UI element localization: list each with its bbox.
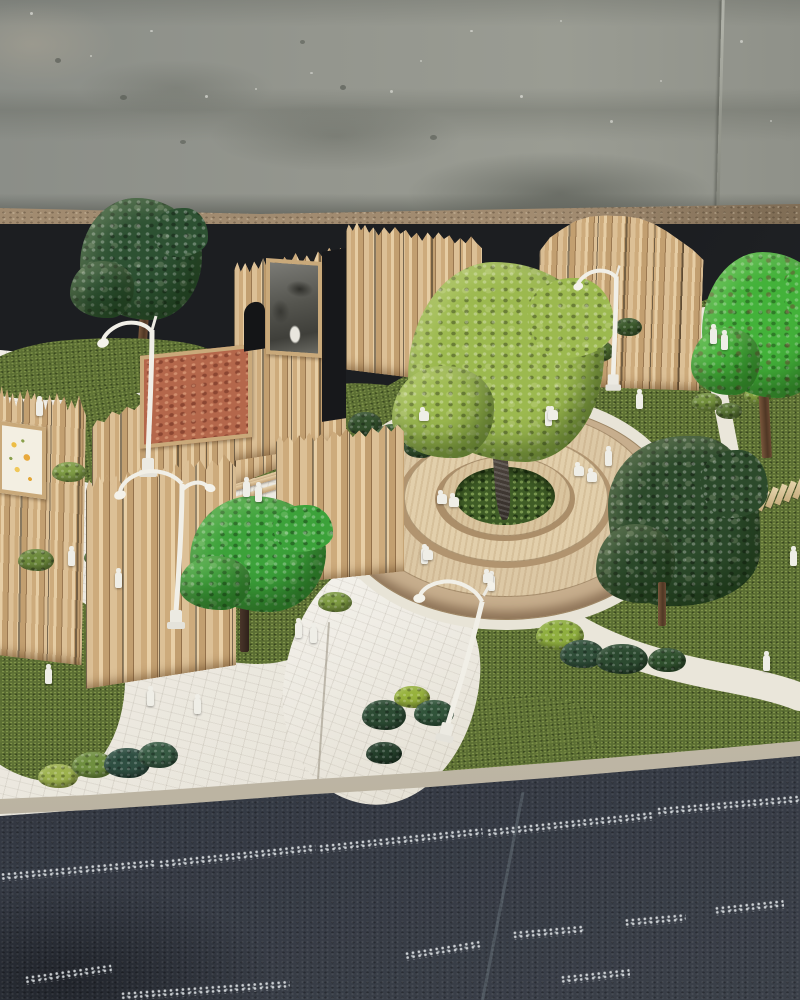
moss-shrub — [18, 549, 54, 571]
framed-photo-panel — [266, 258, 322, 358]
moss-shrub — [596, 644, 648, 674]
round-green-tree — [190, 496, 326, 612]
scale-figure-standing — [721, 334, 728, 350]
tree-trunk — [658, 582, 666, 626]
moss-shrub — [414, 700, 454, 726]
scale-figure-sitting — [449, 497, 459, 507]
scale-figure-standing — [763, 655, 770, 671]
cork-notice-board — [140, 344, 252, 449]
weeping-dark-tree — [608, 436, 760, 606]
scale-figure-sitting — [587, 472, 597, 482]
scale-figure-standing — [310, 627, 317, 643]
scale-figure-sitting — [423, 550, 433, 560]
scale-figure-standing — [147, 690, 154, 706]
arched-doorway — [244, 300, 265, 351]
scale-figure-standing — [243, 481, 250, 497]
framed-botanical-print — [0, 421, 46, 500]
moss-shrub — [648, 648, 686, 672]
scale-figure-standing — [36, 400, 43, 416]
scale-figure-standing — [710, 328, 717, 344]
scale-figure-sitting — [548, 410, 558, 420]
scale-figure-sitting — [483, 573, 493, 583]
moss-shrub — [138, 742, 178, 768]
scale-figure-standing — [295, 622, 302, 638]
moss-shrub — [366, 742, 402, 764]
scale-figure-standing — [255, 486, 262, 502]
scale-figure-standing — [115, 572, 122, 588]
scale-figure-standing — [605, 450, 612, 466]
scale-figure-standing — [790, 550, 797, 566]
moss-shrub — [716, 403, 742, 419]
fence-gap — [322, 248, 346, 422]
scale-figure-sitting — [574, 466, 584, 476]
central-lime-tree — [408, 262, 604, 462]
moss-shrub — [52, 462, 86, 482]
moss-shrub — [614, 318, 642, 336]
model-photograph — [0, 0, 800, 1000]
scale-figure-sitting — [419, 411, 429, 421]
scale-figure-standing — [194, 698, 201, 714]
moss-shrub — [318, 592, 352, 612]
scale-figure-standing — [45, 668, 52, 684]
scale-figure-sitting — [437, 494, 447, 504]
scale-figure-standing — [68, 550, 75, 566]
scale-figure-standing — [636, 393, 643, 409]
